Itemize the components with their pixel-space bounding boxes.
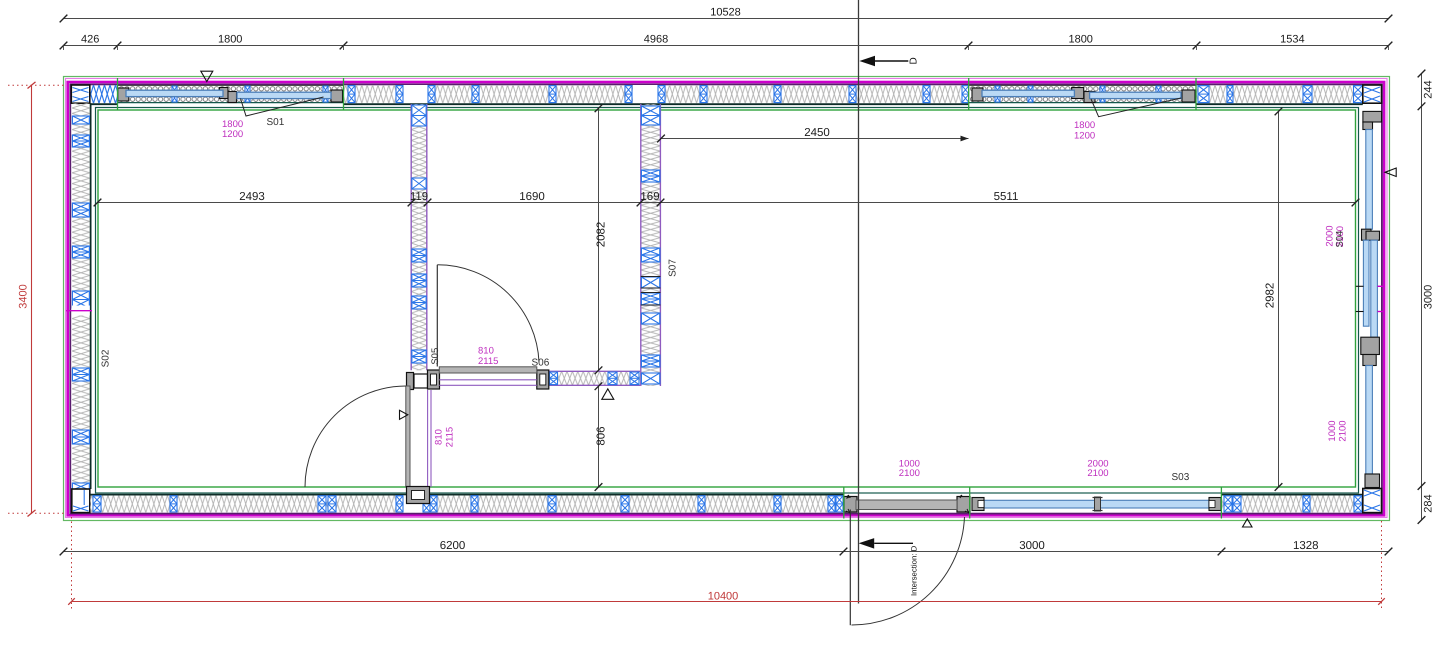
svg-text:810: 810 xyxy=(478,346,494,357)
svg-text:2450: 2450 xyxy=(804,127,830,139)
svg-text:2100: 2100 xyxy=(899,468,920,479)
svg-text:426: 426 xyxy=(81,33,99,45)
svg-text:2100: 2100 xyxy=(1338,420,1349,441)
svg-text:2115: 2115 xyxy=(445,427,456,447)
svg-text:169: 169 xyxy=(640,191,659,203)
svg-text:806: 806 xyxy=(596,426,608,445)
svg-text:1200: 1200 xyxy=(1074,131,1095,142)
svg-text:S01: S01 xyxy=(267,117,285,128)
svg-text:Intersection: D: Intersection: D xyxy=(910,545,919,596)
svg-text:S06: S06 xyxy=(532,357,550,368)
svg-text:1200: 1200 xyxy=(222,129,243,140)
svg-text:1534: 1534 xyxy=(1280,33,1304,45)
svg-text:2082: 2082 xyxy=(596,222,608,248)
svg-text:S05: S05 xyxy=(430,348,441,365)
svg-text:S03: S03 xyxy=(1172,472,1190,483)
svg-text:810: 810 xyxy=(434,429,445,445)
svg-text:244: 244 xyxy=(1423,80,1435,98)
svg-text:1800: 1800 xyxy=(1074,120,1095,131)
svg-text:2982: 2982 xyxy=(1265,283,1277,309)
svg-text:10400: 10400 xyxy=(708,590,739,602)
svg-text:S02: S02 xyxy=(101,349,112,367)
svg-text:1000: 1000 xyxy=(1327,420,1338,441)
svg-text:D: D xyxy=(909,57,920,64)
svg-text:2115: 2115 xyxy=(478,356,498,367)
svg-text:284: 284 xyxy=(1423,494,1435,512)
svg-text:S04: S04 xyxy=(1335,231,1346,248)
svg-text:1800: 1800 xyxy=(1068,33,1092,45)
svg-text:10528: 10528 xyxy=(710,7,741,19)
svg-text:3400: 3400 xyxy=(18,284,30,308)
svg-text:1690: 1690 xyxy=(519,191,545,203)
svg-text:1800: 1800 xyxy=(218,33,242,45)
svg-text:6200: 6200 xyxy=(440,540,466,552)
svg-text:119: 119 xyxy=(410,191,428,203)
svg-text:3000: 3000 xyxy=(1423,285,1435,309)
svg-text:1328: 1328 xyxy=(1293,540,1319,552)
svg-text:4968: 4968 xyxy=(644,33,668,45)
svg-text:2100: 2100 xyxy=(1087,468,1108,479)
svg-text:S07: S07 xyxy=(668,259,679,277)
svg-text:2493: 2493 xyxy=(239,191,265,203)
svg-text:3000: 3000 xyxy=(1019,540,1045,552)
svg-text:5511: 5511 xyxy=(994,191,1019,203)
